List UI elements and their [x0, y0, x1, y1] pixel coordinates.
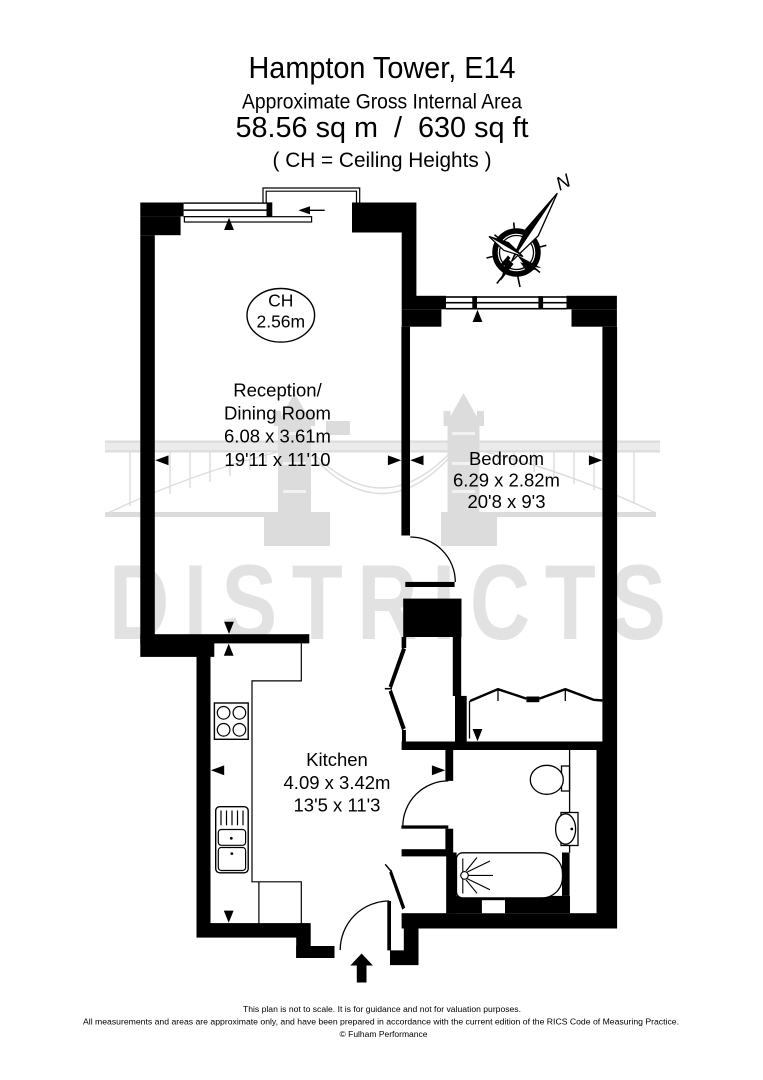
svg-text:CH: CH: [268, 291, 293, 311]
svg-text:Reception/: Reception/: [233, 380, 322, 401]
svg-text:20'8 x 9'3: 20'8 x 9'3: [467, 491, 545, 512]
svg-text:6.29 x 2.82m: 6.29 x 2.82m: [453, 470, 560, 491]
svg-text:58.56 sq m / 630 sq ft: 58.56 sq m / 630 sq ft: [236, 112, 529, 144]
svg-text:2.56m: 2.56m: [256, 312, 305, 332]
svg-text:Approximate Gross Internal Are: Approximate Gross Internal Area: [242, 89, 522, 113]
svg-text:Bedroom: Bedroom: [469, 448, 544, 469]
svg-text:( CH = Ceiling Heights ): ( CH = Ceiling Heights ): [273, 149, 492, 172]
svg-text:This plan is not to scale. It: This plan is not to scale. It is for gui…: [243, 1004, 521, 1014]
svg-text:Dining Room: Dining Room: [224, 403, 331, 424]
svg-text:© Fulham Performance: © Fulham Performance: [340, 1029, 428, 1039]
svg-text:19'11 x 11'10: 19'11 x 11'10: [224, 449, 330, 470]
svg-text:All measurements and areas are: All measurements and areas are approxima…: [83, 1017, 679, 1027]
svg-text:6.08 x 3.61m: 6.08 x 3.61m: [224, 426, 331, 447]
svg-text:Kitchen: Kitchen: [306, 749, 368, 770]
svg-text:13'5 x 11'3: 13'5 x 11'3: [294, 795, 381, 816]
svg-text:4.09 x 3.42m: 4.09 x 3.42m: [284, 772, 391, 793]
svg-text:Hampton Tower, E14: Hampton Tower, E14: [249, 51, 516, 85]
